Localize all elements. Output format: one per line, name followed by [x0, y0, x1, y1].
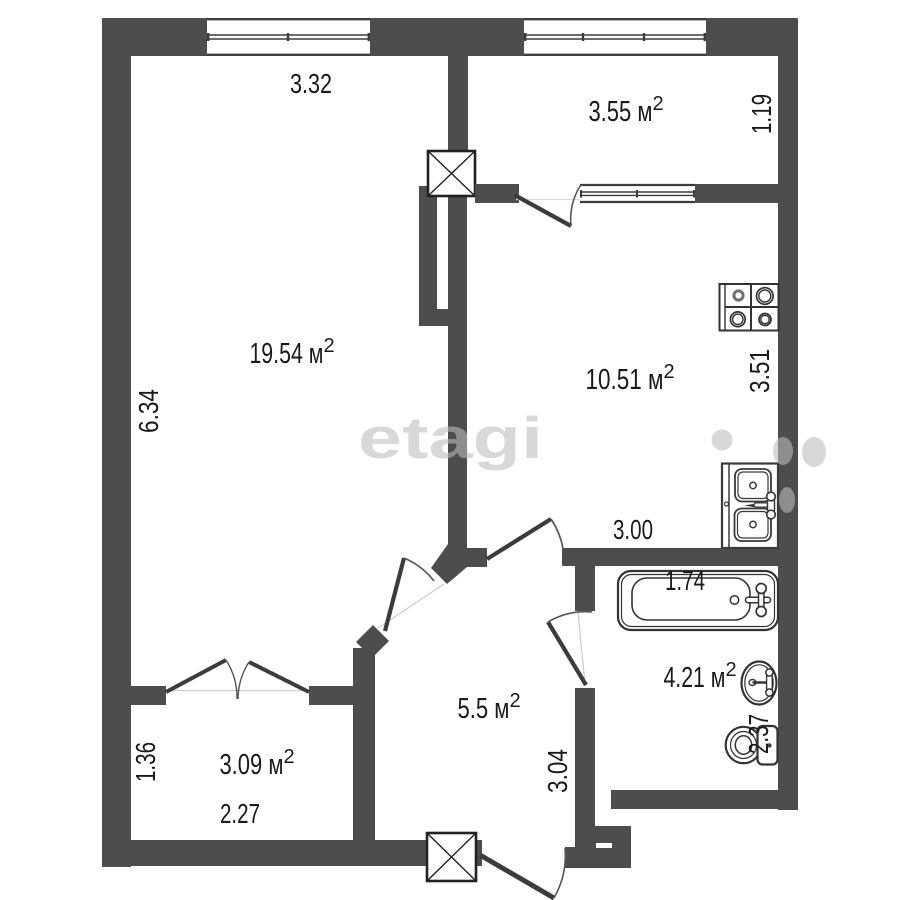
svg-text:1.19: 1.19: [746, 94, 777, 134]
svg-text:2.27: 2.27: [220, 798, 260, 829]
svg-text:1.36: 1.36: [130, 742, 161, 782]
svg-text:3.32: 3.32: [290, 68, 332, 99]
svg-text:1.74: 1.74: [665, 565, 705, 596]
svg-text:10.51 м2: 10.51 м2: [585, 361, 674, 396]
svg-text:6.34: 6.34: [133, 389, 164, 433]
svg-text:3.00: 3.00: [613, 514, 653, 545]
svg-text:3.09 м2: 3.09 м2: [219, 746, 294, 781]
svg-text:3.55 м2: 3.55 м2: [588, 93, 663, 128]
svg-text:3.04: 3.04: [542, 749, 573, 793]
svg-text:3.51: 3.51: [744, 349, 775, 393]
svg-text:2.37: 2.37: [743, 714, 774, 754]
svg-text:19.54 м2: 19.54 м2: [249, 335, 334, 370]
svg-text:etagi: etagi: [358, 406, 543, 471]
